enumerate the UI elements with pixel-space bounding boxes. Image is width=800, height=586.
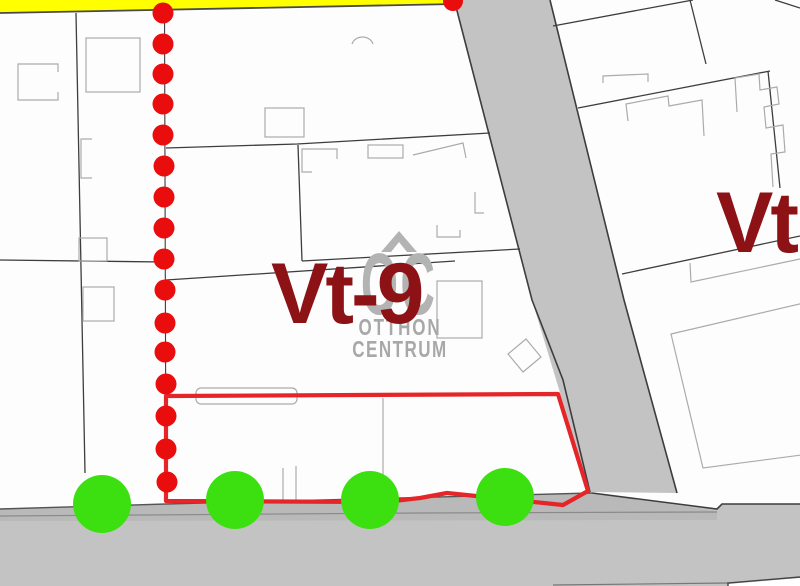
building-outline: [437, 225, 460, 237]
boundary-dot: [154, 187, 175, 208]
building-outline: [265, 108, 304, 137]
building-outline: [413, 143, 466, 158]
parcel-line: [166, 133, 490, 148]
boundary-dot: [153, 3, 174, 24]
boundary-dot: [155, 313, 176, 334]
building-outline: [81, 139, 92, 178]
building-outline: [86, 38, 140, 92]
building-diamond: [508, 339, 541, 372]
building-outline: [735, 74, 785, 187]
building-outline: [626, 96, 704, 136]
boundary-dot: [154, 156, 175, 177]
boundary-dot: [153, 94, 174, 115]
building-outline: [83, 287, 114, 321]
parcel-line: [76, 13, 85, 473]
boundary-dot: [156, 374, 177, 395]
map-canvas[interactable]: OC OTTHON CENTRUM Vt-9 Vt: [0, 0, 800, 586]
tree-marker: [206, 471, 264, 529]
building-outline: [79, 238, 107, 261]
boundary-dot: [154, 249, 175, 270]
building-outline: [437, 281, 482, 338]
tree-marker: [73, 475, 131, 533]
boundary-dot: [155, 280, 176, 301]
building-outline: [368, 145, 403, 158]
building-outline: [603, 74, 648, 83]
tree-marker: [476, 468, 534, 526]
yellow-band-layer: [0, 0, 455, 13]
building-outline: [302, 149, 337, 172]
boundary-dot: [156, 406, 177, 427]
parcel-line: [690, 0, 706, 64]
boundary-dot: [153, 64, 174, 85]
tree-marker: [341, 471, 399, 529]
building-arc: [352, 37, 373, 44]
boundary-dot: [153, 34, 174, 55]
parcel-line: [553, 0, 693, 26]
boundary-dot: [153, 125, 174, 146]
zoning-map: OC OTTHON CENTRUM Vt-9 Vt: [0, 0, 800, 586]
building-outline-large: [671, 302, 800, 468]
parcel-line: [775, 0, 800, 8]
zone-label-right: Vt: [716, 175, 798, 271]
boundary-dot: [154, 218, 175, 239]
building-outline: [18, 64, 58, 100]
building-outline: [475, 192, 484, 213]
boundary-dot: [155, 342, 176, 363]
boundary-dot: [157, 472, 178, 493]
zone-label-main: Vt-9: [271, 246, 422, 342]
boundary-dot: [156, 439, 177, 460]
